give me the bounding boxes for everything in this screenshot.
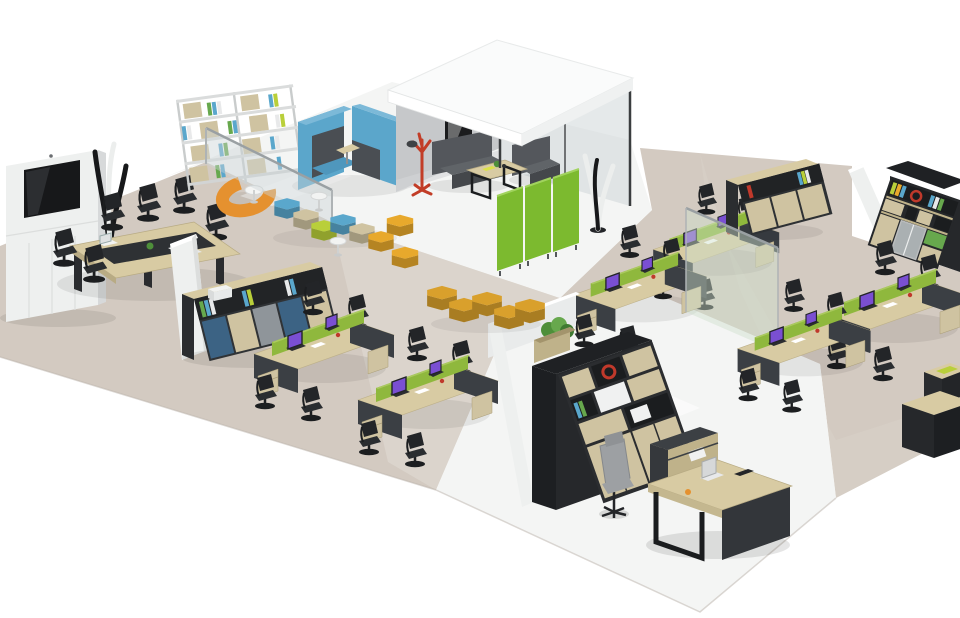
- yellow-pouf: [387, 215, 413, 237]
- low-cabinet-lower: [902, 391, 960, 458]
- office-isometric-render: [0, 0, 960, 618]
- yellow-pouf: [392, 247, 418, 269]
- camera-dot: [49, 154, 53, 158]
